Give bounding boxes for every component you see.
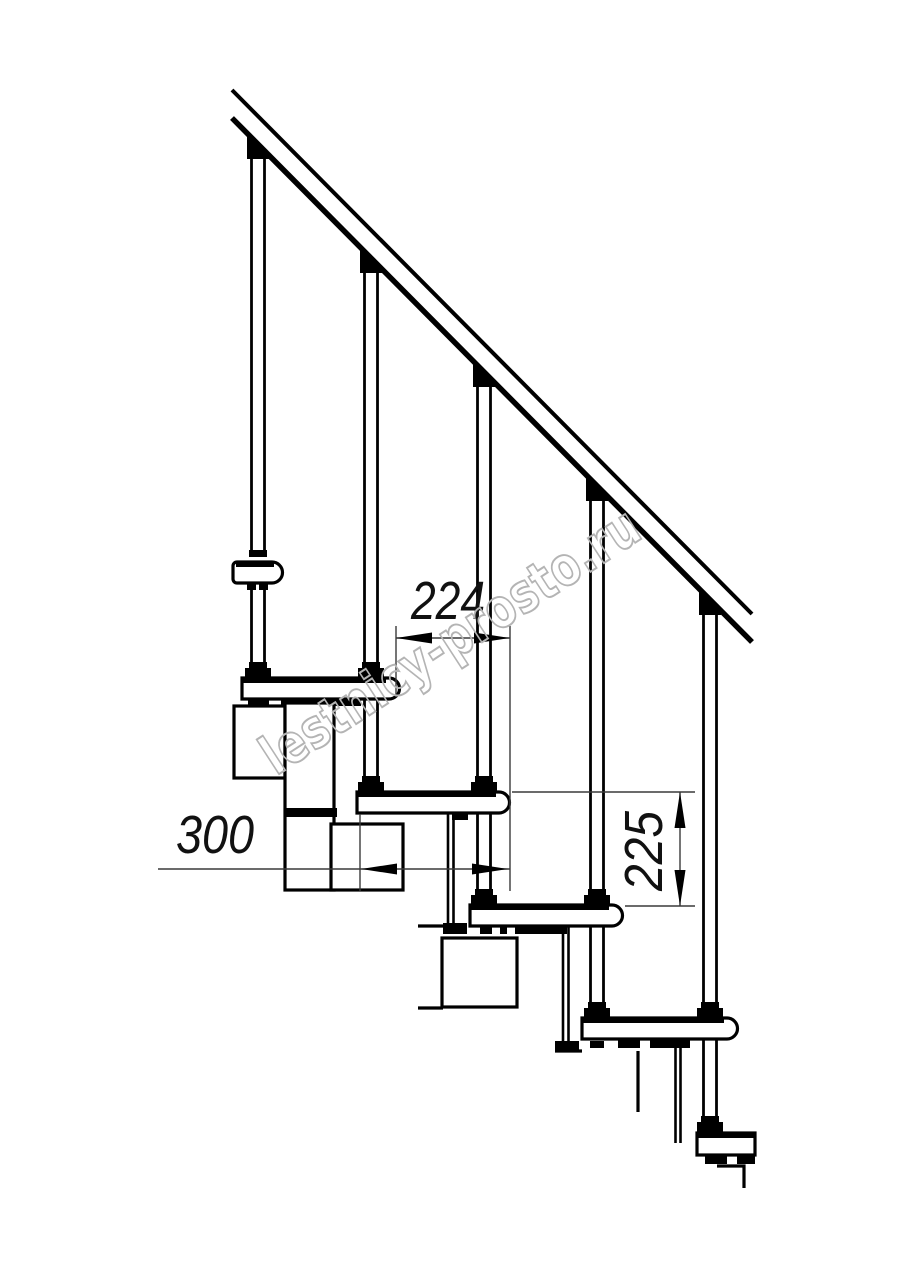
dim-label-225: 225 <box>614 810 674 892</box>
spine-module-3 <box>442 938 517 1007</box>
staircase-drawing-page: 224 300 225 lestnicy-prosto.ru <box>0 0 914 1280</box>
spine-module-1-plate <box>286 808 337 817</box>
dim-label-300: 300 <box>176 805 254 865</box>
staircase-drawing: 224 300 225 lestnicy-prosto.ru <box>0 0 914 1280</box>
spine-module-2 <box>331 824 403 890</box>
